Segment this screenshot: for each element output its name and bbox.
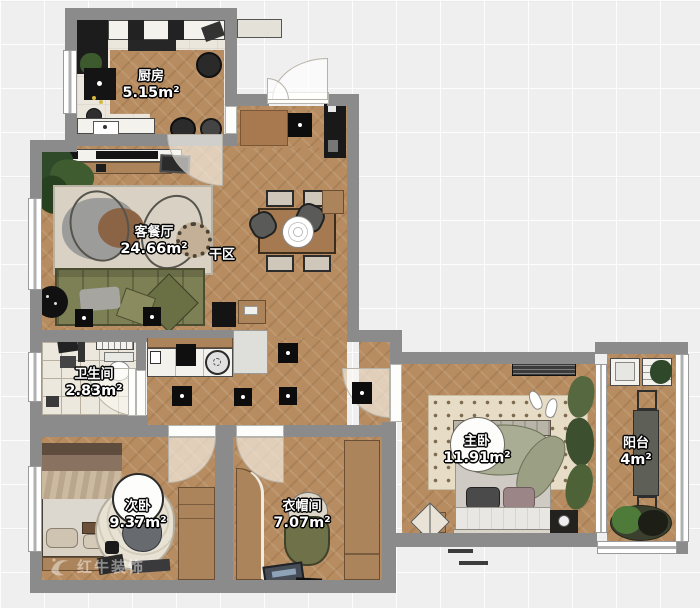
kitchen-area: 5.15m² — [122, 85, 179, 101]
master-pillow-dark — [466, 487, 500, 509]
dry-area-cabinet — [233, 330, 268, 374]
balcony-name: 阳台 — [623, 432, 649, 451]
stove-knob — [97, 81, 102, 86]
side-table-item-1 — [46, 295, 49, 298]
ceiling-light-hall-4 — [279, 387, 297, 405]
dining-platter — [282, 216, 314, 248]
second-bed-pillow-left — [46, 528, 78, 548]
dining-chair-bottom-right — [303, 255, 331, 272]
wall-bathroom-right — [136, 342, 146, 372]
dry-area-label: 干区 — [209, 244, 235, 263]
wall-bedrooms-top-3 — [284, 425, 396, 437]
second-bedroom-label: 次卧 9.37m² — [109, 495, 166, 531]
cloakroom-door-threshold — [236, 425, 284, 437]
window-balcony-bottom — [597, 541, 677, 554]
tv-screen — [96, 151, 158, 159]
wall-master-left-lower — [382, 422, 396, 580]
master-bed-sheet — [455, 507, 551, 531]
dining-chair-bottom-left — [266, 255, 294, 272]
wall-balcony-top — [595, 342, 688, 354]
wall-balcony-corner — [676, 541, 688, 554]
wall-hall-to-master — [347, 330, 402, 342]
exterior-ledge — [237, 19, 282, 38]
wall-kitchen-top — [65, 8, 237, 20]
kitchen-counter-divider-2 — [168, 20, 184, 40]
kitchen-door-leaf — [225, 106, 237, 134]
dimension-dash-1 — [448, 549, 473, 553]
bathroom-door-threshold — [136, 370, 146, 416]
second-bedroom-name: 次卧 — [125, 495, 151, 514]
wall-bedroom-divider — [215, 437, 233, 580]
kitchen-name: 厨房 — [138, 65, 164, 84]
cloakroom-name: 衣帽间 — [282, 495, 321, 514]
ceiling-light-hall-5 — [352, 382, 372, 404]
laundry-appliance — [176, 344, 196, 366]
console-white-item — [244, 306, 258, 315]
master-door-threshold — [390, 364, 402, 422]
window-second-bedroom — [28, 466, 42, 552]
side-table-item-2 — [54, 302, 57, 305]
kitchen-stool — [196, 52, 222, 78]
ceiling-light-hall-1 — [278, 343, 298, 363]
sofa-throw-blanket — [79, 286, 121, 311]
window-bathroom — [28, 352, 42, 402]
wall-living-right — [347, 94, 359, 342]
side-cabinet — [322, 190, 344, 214]
wall-laundry-back — [147, 330, 233, 338]
kitchen-hood — [128, 40, 176, 51]
bathroom-door-leaf — [128, 368, 136, 416]
master-bedroom-area: 11.91m² — [443, 450, 510, 466]
balcony-stool-top — [637, 390, 657, 410]
wall-kitchen-right — [225, 8, 237, 106]
sink-drain — [103, 125, 107, 129]
dimension-dash-2 — [459, 561, 488, 565]
bathroom-label: 卫生间 2.83m² — [65, 363, 122, 399]
living-area: 24.66m² — [120, 241, 187, 257]
laundry-sink — [150, 351, 161, 364]
balcony-sink-basin — [615, 362, 635, 381]
window-kitchen — [63, 50, 77, 114]
ceiling-light-hall-3 — [234, 388, 252, 406]
bathroom-name: 卫生间 — [74, 363, 113, 382]
coffee-machine — [328, 140, 338, 152]
watermark-bull-icon — [48, 554, 72, 578]
balcony-label: 阳台 4m² — [620, 432, 652, 468]
wall-bedrooms-top-2 — [216, 425, 236, 437]
console-black-unit — [212, 302, 236, 327]
coffee-cup — [328, 106, 336, 112]
kitchen-lemon-2 — [99, 100, 103, 104]
master-bedroom-name: 主卧 — [464, 430, 490, 449]
kitchen-label: 厨房 5.15m² — [122, 65, 179, 101]
wall-bedrooms-top-1 — [30, 425, 168, 437]
kitchen-lemon-1 — [92, 96, 96, 100]
kitchen-counter-divider-1 — [128, 20, 144, 40]
washer-drum — [213, 358, 221, 366]
cloakroom-area: 7.07m² — [273, 515, 330, 531]
master-pillow-mauve — [503, 487, 535, 509]
bathroom-area: 2.83m² — [65, 383, 122, 399]
media-item — [96, 164, 106, 172]
dining-chair-top-left — [266, 190, 294, 207]
wall-bathroom-top — [30, 330, 147, 342]
dry-area-name: 干区 — [209, 244, 235, 263]
wall-master-bottom — [390, 533, 597, 547]
floor-cup — [105, 541, 119, 554]
floor-drain — [46, 396, 59, 407]
watermark: 红牛装饰 — [48, 554, 145, 578]
cloakroom-wardrobe-right — [344, 440, 380, 580]
ceiling-light-hall-2 — [172, 386, 192, 406]
balcony-area: 4m² — [620, 452, 652, 468]
second-bedroom-wardrobe — [178, 487, 215, 580]
entry-mat — [240, 110, 288, 146]
ceiling-light-living-2 — [143, 307, 161, 326]
nightstand-lamp — [558, 515, 570, 527]
ceiling-light-living-1 — [75, 309, 93, 327]
living-label: 客餐厅 24.66m² — [120, 221, 187, 257]
wall-entry-left — [237, 94, 269, 106]
balcony-partition-door — [595, 364, 607, 533]
second-bed-headboard — [42, 443, 122, 455]
master-bedroom-label: 主卧 11.91m² — [443, 430, 510, 466]
wall-master-top — [390, 352, 595, 364]
second-bedroom-area: 9.37m² — [109, 515, 166, 531]
cloakroom-label: 衣帽间 7.07m² — [273, 495, 330, 531]
second-bed-quilt-dark — [42, 455, 122, 471]
second-bedroom-door-threshold — [168, 425, 216, 437]
ceiling-light-entry — [288, 113, 312, 137]
window-balcony-right — [675, 354, 689, 542]
window-living — [28, 198, 42, 290]
floor-plan-canvas: 厨房 5.15m² 客餐厅 24.66m² 干区 卫生间 2.83m² 次卧 9… — [0, 0, 700, 608]
wall-bottom — [30, 580, 396, 593]
cloakroom-wardrobe-left — [236, 468, 264, 580]
watermark-brand: 红牛装饰 — [77, 556, 145, 577]
living-name: 客餐厅 — [134, 221, 173, 240]
